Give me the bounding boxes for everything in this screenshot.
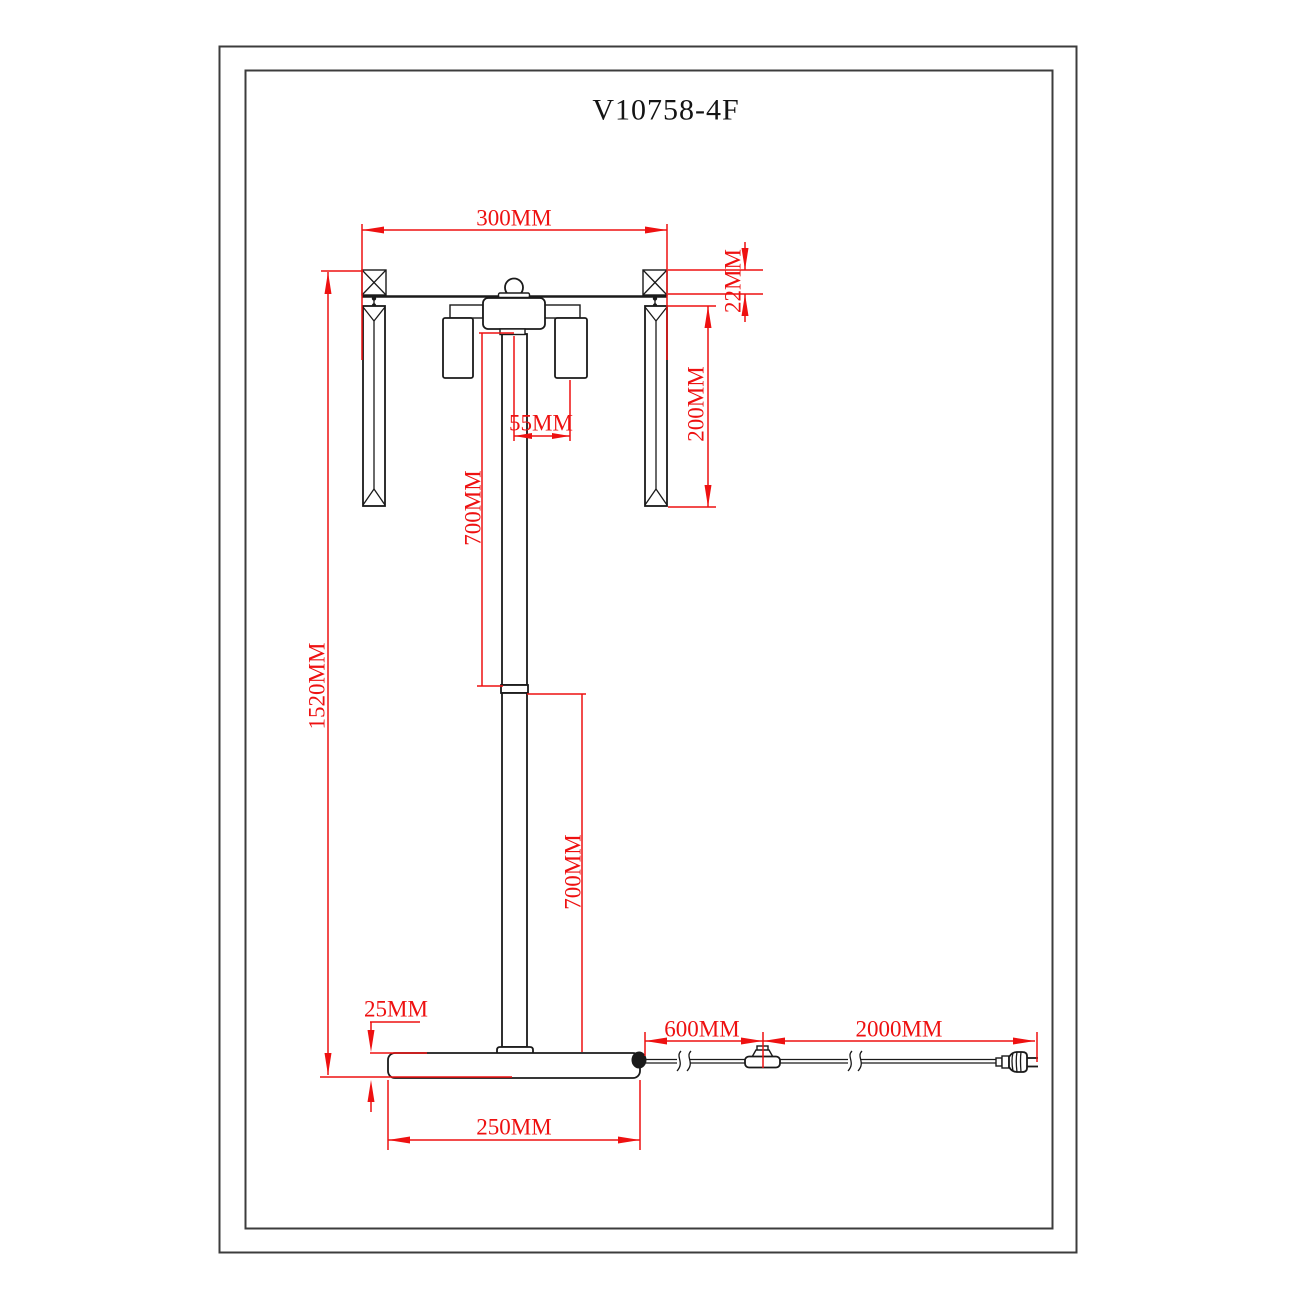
dimension-label: 700MM	[461, 470, 486, 545]
link-bead	[653, 296, 657, 300]
dimension-label: 250MM	[476, 1115, 551, 1140]
power-plug	[996, 1052, 1038, 1072]
dimension-label: 300MM	[476, 206, 551, 231]
right-shade	[555, 318, 587, 378]
dimension-label: 1520MM	[305, 643, 330, 730]
arrowhead	[1013, 1038, 1035, 1045]
inner-border	[246, 71, 1053, 1229]
plug-hatch	[1021, 1052, 1022, 1072]
technical-drawing: V10758-4F	[0, 0, 1300, 1300]
dimension-label: 55MM	[509, 411, 573, 436]
arrowhead	[763, 1038, 785, 1045]
left-hanger-block	[362, 270, 386, 309]
arrowhead	[368, 1030, 375, 1052]
pole-joint	[501, 685, 528, 693]
drawing-title: V10758-4F	[592, 94, 739, 127]
dimension-base-width: 250MM	[388, 1080, 640, 1150]
left-shade	[443, 318, 473, 378]
finial-cap	[499, 293, 530, 298]
plug-grip	[1002, 1056, 1009, 1068]
arrowhead	[705, 485, 712, 507]
dimension-crystal-length: 200MM	[668, 306, 716, 507]
dimension-label: 600MM	[664, 1017, 739, 1042]
dimension-label: 2000MM	[856, 1017, 943, 1042]
dimension-lower-pole: 700MM	[527, 694, 586, 1052]
arrowhead	[325, 272, 332, 294]
power-cord	[632, 1051, 998, 1071]
left-arm	[450, 305, 483, 318]
dimension-label: 700MM	[561, 834, 586, 909]
dimension-hanger-height: 22MM	[668, 242, 763, 322]
right-arm	[543, 305, 580, 318]
drawing-page: V10758-4F	[0, 0, 1300, 1300]
dimension-total-height: 1520MM	[305, 271, 513, 1077]
right-hanger-block	[643, 270, 667, 309]
dimension-label: 25MM	[364, 997, 428, 1022]
plug-hatch	[1016, 1052, 1017, 1072]
left-crystal-pendant	[363, 306, 385, 506]
dimension-label: 200MM	[684, 366, 709, 441]
canopy-assembly	[483, 279, 545, 335]
arrowhead	[645, 227, 667, 234]
link-bead	[372, 296, 376, 300]
lower-pole	[502, 693, 527, 1047]
arrowhead	[325, 1053, 332, 1075]
dimension-label: 22MM	[721, 249, 746, 313]
arrowhead	[705, 306, 712, 328]
right-crystal-pendant	[645, 306, 667, 506]
arrowhead	[388, 1137, 410, 1144]
arrowhead	[741, 1038, 763, 1045]
dimension-switch-to-plug: 2000MM	[763, 1017, 1037, 1063]
lamp-base	[388, 1053, 640, 1078]
arrowhead	[618, 1137, 640, 1144]
plug-grip	[996, 1058, 1002, 1066]
canopy-body	[483, 298, 545, 329]
arrowhead	[362, 227, 384, 234]
